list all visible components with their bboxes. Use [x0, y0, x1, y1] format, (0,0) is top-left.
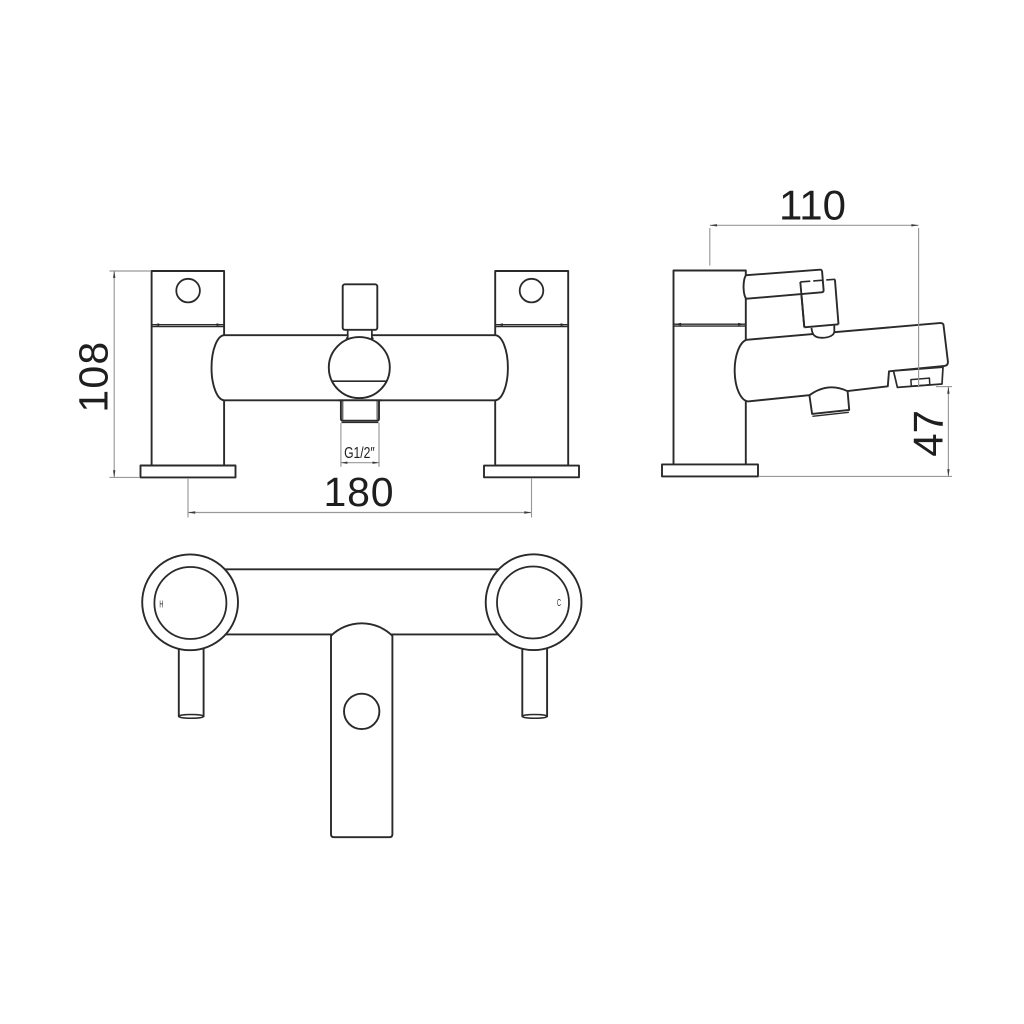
svg-text:108: 108 [70, 341, 116, 413]
svg-text:180: 180 [323, 469, 394, 515]
svg-text:110: 110 [779, 181, 846, 228]
svg-text:47: 47 [905, 410, 952, 457]
svg-text:C: C [557, 597, 561, 608]
svg-text:H: H [159, 599, 163, 610]
svg-text:G1/2″: G1/2″ [344, 445, 375, 463]
